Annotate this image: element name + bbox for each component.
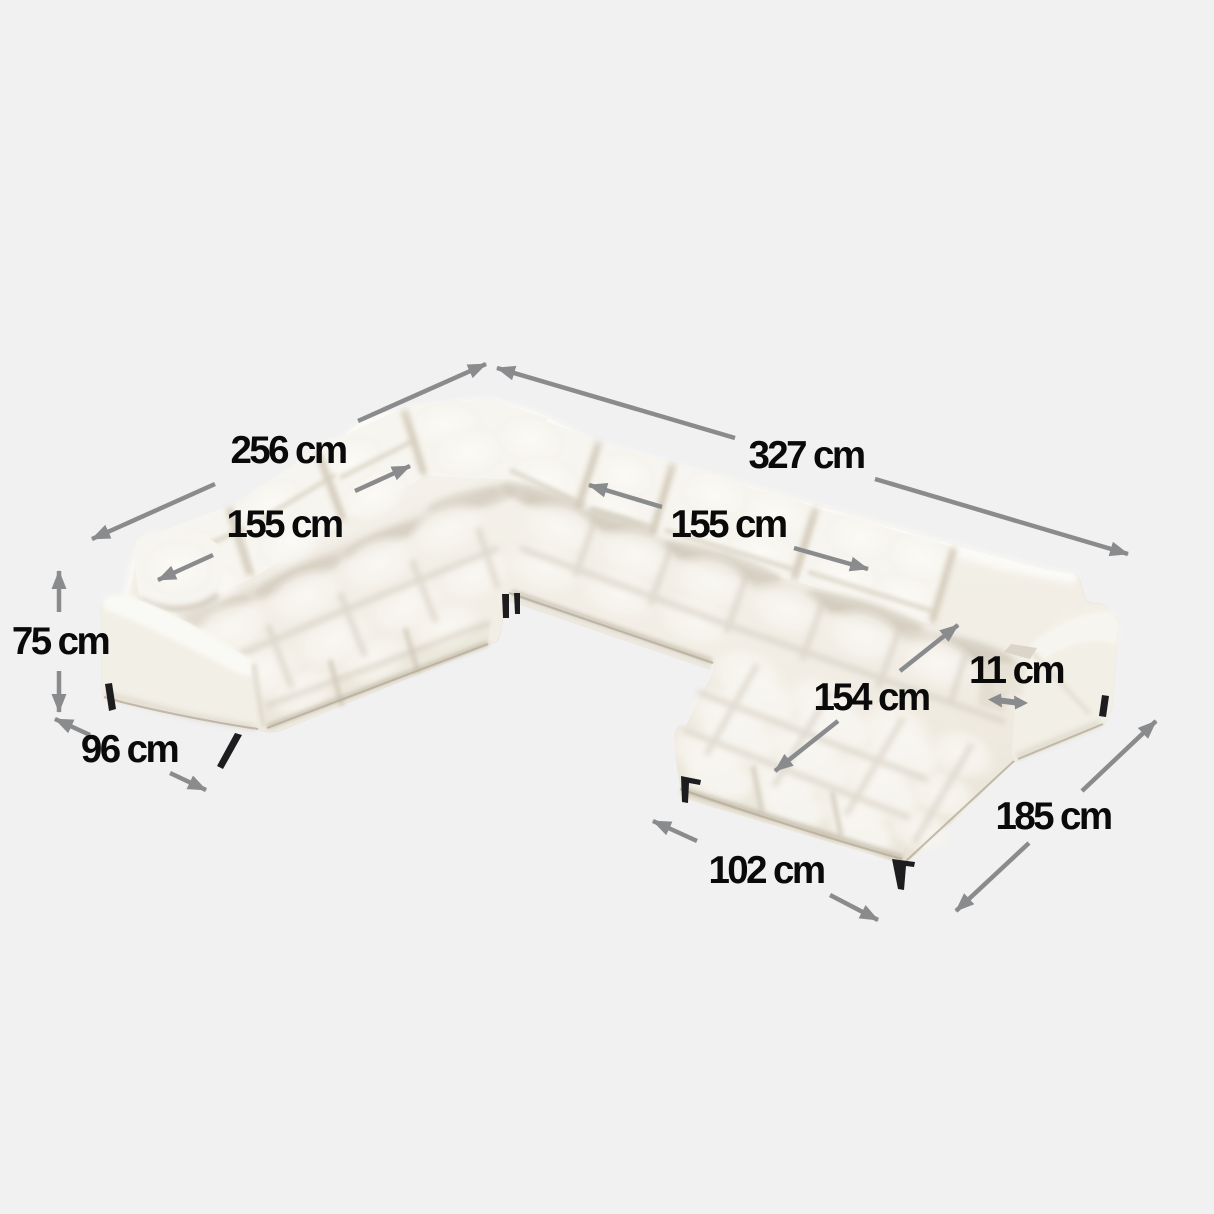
svg-text:155 cm: 155 cm xyxy=(227,503,342,546)
svg-text:185 cm: 185 cm xyxy=(996,795,1111,838)
svg-text:102 cm: 102 cm xyxy=(709,849,824,892)
svg-text:96 cm: 96 cm xyxy=(81,728,178,771)
svg-text:154 cm: 154 cm xyxy=(814,676,929,719)
svg-text:256 cm: 256 cm xyxy=(231,429,346,472)
svg-text:11 cm: 11 cm xyxy=(969,649,1063,692)
svg-text:75 cm: 75 cm xyxy=(12,620,109,663)
svg-text:327 cm: 327 cm xyxy=(749,434,864,477)
svg-text:155 cm: 155 cm xyxy=(671,503,786,546)
